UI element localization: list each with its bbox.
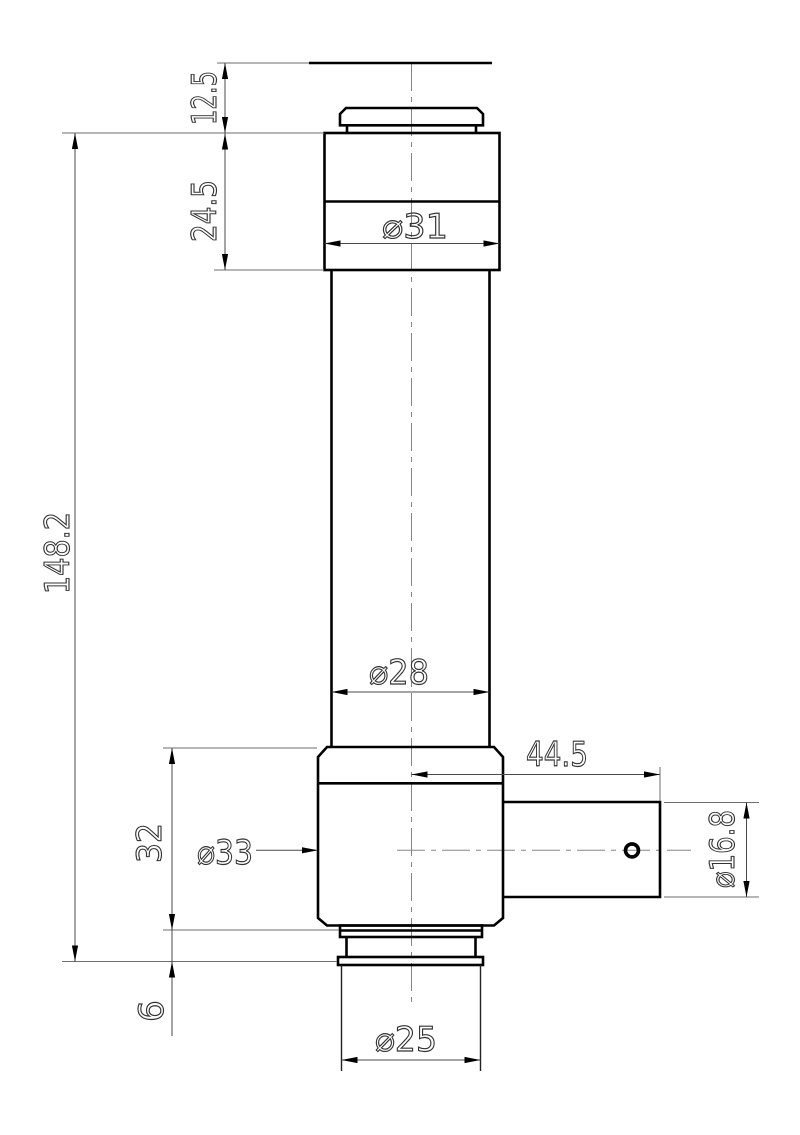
dim-label-step-height: 6 — [132, 1000, 172, 1022]
dim-label-base-height: 32 — [130, 823, 170, 863]
arrowhead — [332, 689, 348, 695]
arrowhead — [222, 134, 228, 150]
arrowhead — [169, 962, 175, 978]
dim-label-body-diameter: ⌀28 — [369, 653, 429, 693]
arrowhead — [465, 1057, 481, 1063]
arrowhead — [302, 847, 318, 853]
arrowhead — [484, 240, 500, 246]
arrowhead — [342, 1057, 358, 1063]
dim-label-base-diameter: ⌀33 — [197, 833, 253, 873]
arrowhead — [743, 803, 749, 819]
arrowhead — [644, 771, 660, 777]
arrowhead — [169, 748, 175, 764]
technical-drawing: 12.5 24.5 148.2 32 6 ⌀16.8 ⌀31 ⌀28 44.5 … — [0, 0, 800, 1135]
arrowhead — [222, 254, 228, 270]
centerlines — [397, 63, 691, 1002]
arrowhead — [169, 914, 175, 930]
dim-label-head-diameter: ⌀31 — [382, 207, 448, 247]
arrowhead — [743, 881, 749, 897]
side-arm — [503, 802, 660, 897]
dim-label-cap-height: 12.5 — [185, 71, 225, 125]
part-outline — [309, 63, 660, 965]
dim-label-overall-length: 148.2 — [38, 512, 78, 594]
base-block — [318, 747, 503, 926]
technical-drawing-page: 12.5 24.5 148.2 32 6 ⌀16.8 ⌀31 ⌀28 44.5 … — [0, 0, 800, 1135]
dim-label-head-height: 24.5 — [185, 180, 225, 242]
arrowhead — [412, 771, 428, 777]
bottom-flange — [338, 957, 483, 965]
arrowhead — [474, 689, 490, 695]
arrowhead — [325, 240, 341, 246]
arrowhead — [72, 946, 78, 962]
dimension-labels: 12.5 24.5 148.2 32 6 ⌀16.8 ⌀31 ⌀28 44.5 … — [38, 71, 743, 1060]
dim-label-arm-length: 44.5 — [526, 735, 588, 775]
arrowhead — [72, 133, 78, 149]
dim-label-barrel-diameter: ⌀25 — [375, 1020, 437, 1060]
dim-label-arm-diameter: ⌀16.8 — [703, 810, 743, 888]
